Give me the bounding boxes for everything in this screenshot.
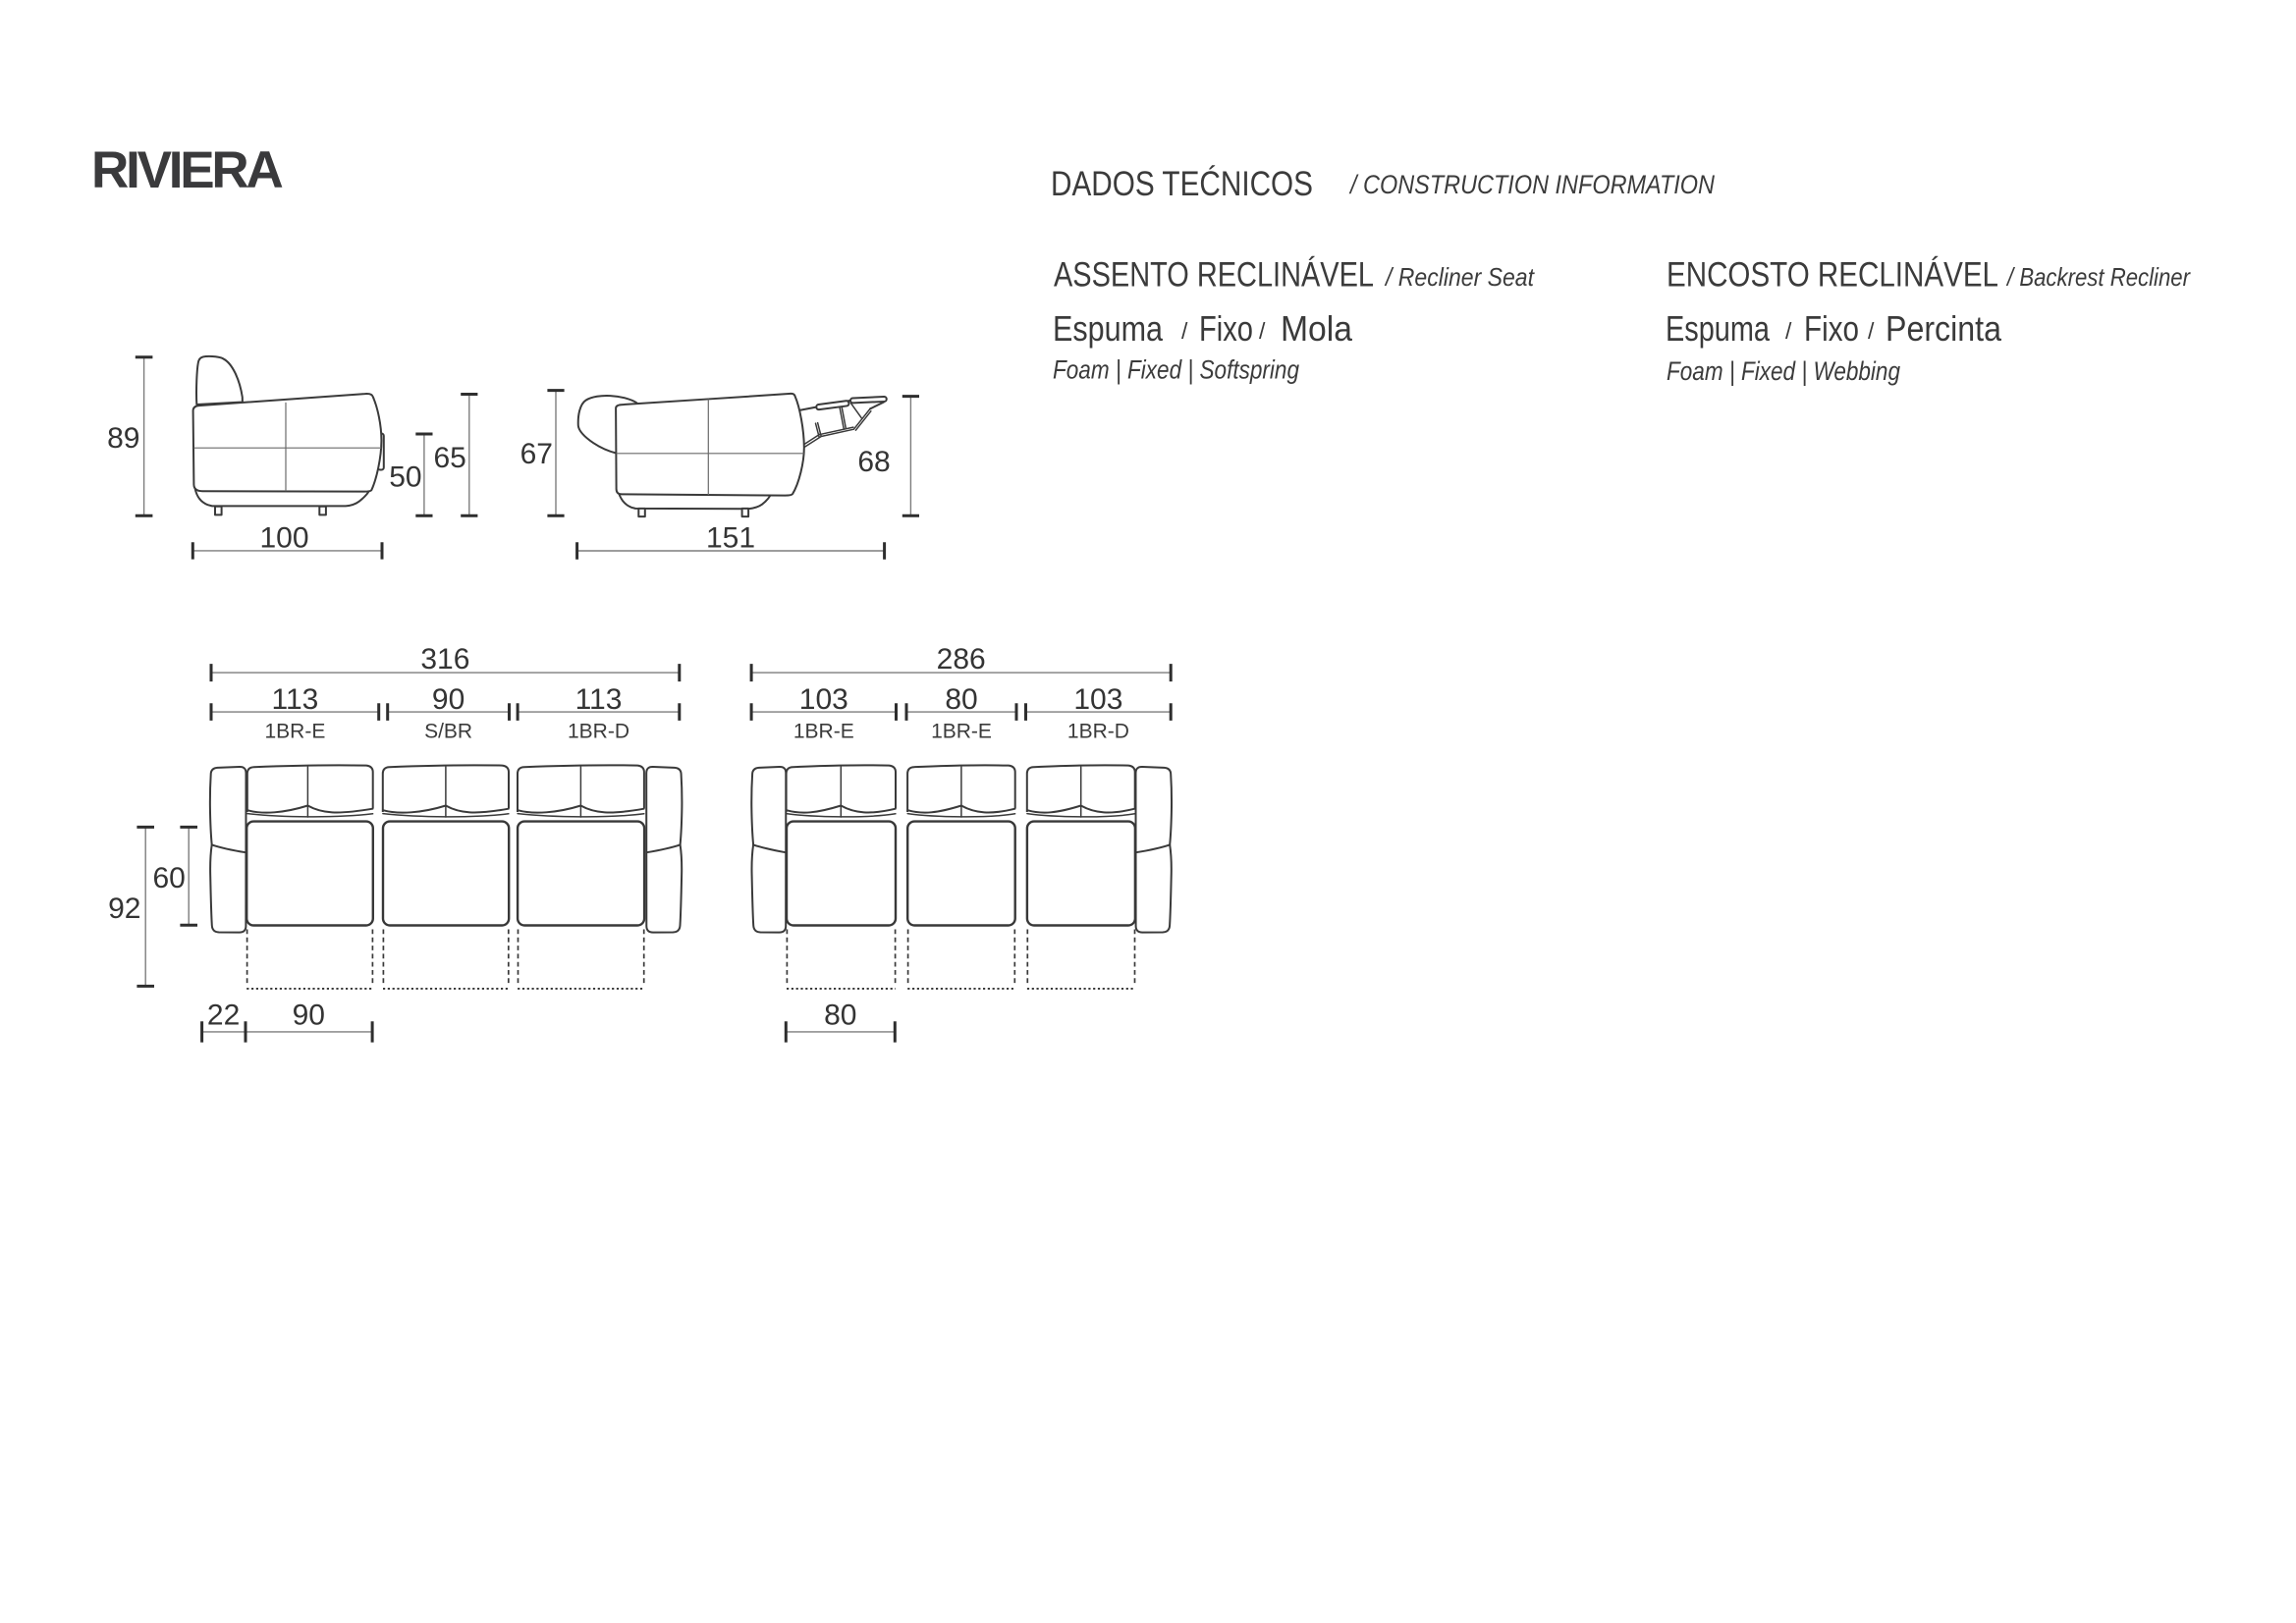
svg-text:67: 67 [520, 438, 553, 470]
svg-text:100: 100 [259, 522, 308, 555]
svg-text:/ Backrest Recliner: / Backrest Recliner [2005, 262, 2191, 292]
svg-text:/ Recliner Seat: / Recliner Seat [1384, 262, 1535, 292]
svg-text:1BR-D: 1BR-D [1067, 721, 1129, 743]
svg-text:1BR-E: 1BR-E [793, 721, 854, 743]
svg-text:22: 22 [207, 1000, 240, 1032]
svg-text:Espuma: Espuma [1666, 308, 1771, 349]
svg-text:90: 90 [432, 683, 465, 716]
svg-text:90: 90 [293, 1000, 325, 1032]
svg-text:80: 80 [824, 1000, 856, 1032]
svg-text:Fixo: Fixo [1199, 308, 1253, 349]
svg-text:ENCOSTO RECLINÁVEL: ENCOSTO RECLINÁVEL [1667, 255, 1998, 295]
svg-text:151: 151 [706, 522, 755, 555]
svg-text:68: 68 [857, 446, 890, 478]
svg-text:Mola: Mola [1281, 308, 1353, 349]
svg-text:DADOS TEĆNICOS: DADOS TEĆNICOS [1051, 164, 1313, 203]
svg-text:60: 60 [153, 862, 186, 894]
svg-text:/: / [1259, 318, 1266, 344]
svg-text:80: 80 [945, 683, 977, 716]
svg-text:/ CONSTRUCTION INFORMATION: / CONSTRUCTION INFORMATION [1348, 170, 1716, 199]
svg-text:50: 50 [389, 460, 421, 493]
svg-text:/: / [1785, 318, 1792, 344]
svg-text:113: 113 [575, 683, 623, 716]
svg-text:113: 113 [271, 683, 318, 716]
svg-text:92: 92 [108, 893, 140, 925]
svg-text:ASSENTO RECLINÁVEL: ASSENTO RECLINÁVEL [1054, 255, 1374, 295]
svg-text:103: 103 [1073, 683, 1122, 716]
svg-text:Percinta: Percinta [1886, 308, 2002, 349]
svg-text:316: 316 [420, 643, 469, 676]
svg-text:/: / [1868, 318, 1875, 344]
svg-text:Fixo: Fixo [1804, 308, 1859, 349]
svg-text:103: 103 [799, 683, 848, 716]
svg-text:Espuma: Espuma [1053, 308, 1164, 349]
svg-text:286: 286 [937, 643, 986, 676]
svg-text:Foam | Fixed | Softspring: Foam | Fixed | Softspring [1053, 355, 1299, 385]
svg-text:S/BR: S/BR [424, 721, 472, 743]
svg-text:1BR-E: 1BR-E [931, 721, 992, 743]
svg-text:89: 89 [107, 422, 139, 455]
svg-text:/: / [1181, 318, 1188, 344]
svg-text:1BR-D: 1BR-D [568, 721, 629, 743]
svg-text:RIVIERA: RIVIERA [91, 141, 283, 199]
svg-text:1BR-E: 1BR-E [264, 721, 325, 743]
svg-text:Foam | Fixed | Webbing: Foam | Fixed | Webbing [1667, 356, 1900, 386]
svg-text:65: 65 [434, 442, 466, 474]
